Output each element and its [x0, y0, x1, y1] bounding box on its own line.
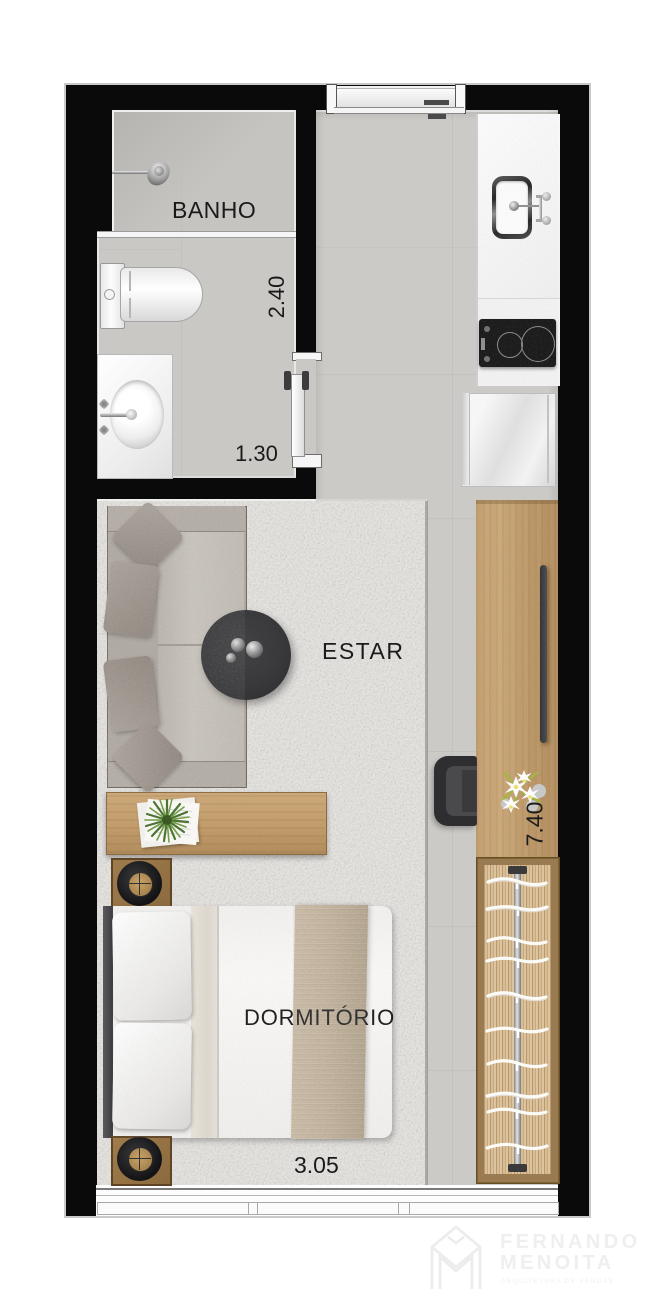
- svg-text:MENOITA: MENOITA: [500, 1252, 615, 1274]
- svg-text:ARQUITETURA DE VENDAS: ARQUITETURA DE VENDAS: [501, 1278, 614, 1285]
- svg-text:FERNANDO: FERNANDO: [500, 1231, 641, 1253]
